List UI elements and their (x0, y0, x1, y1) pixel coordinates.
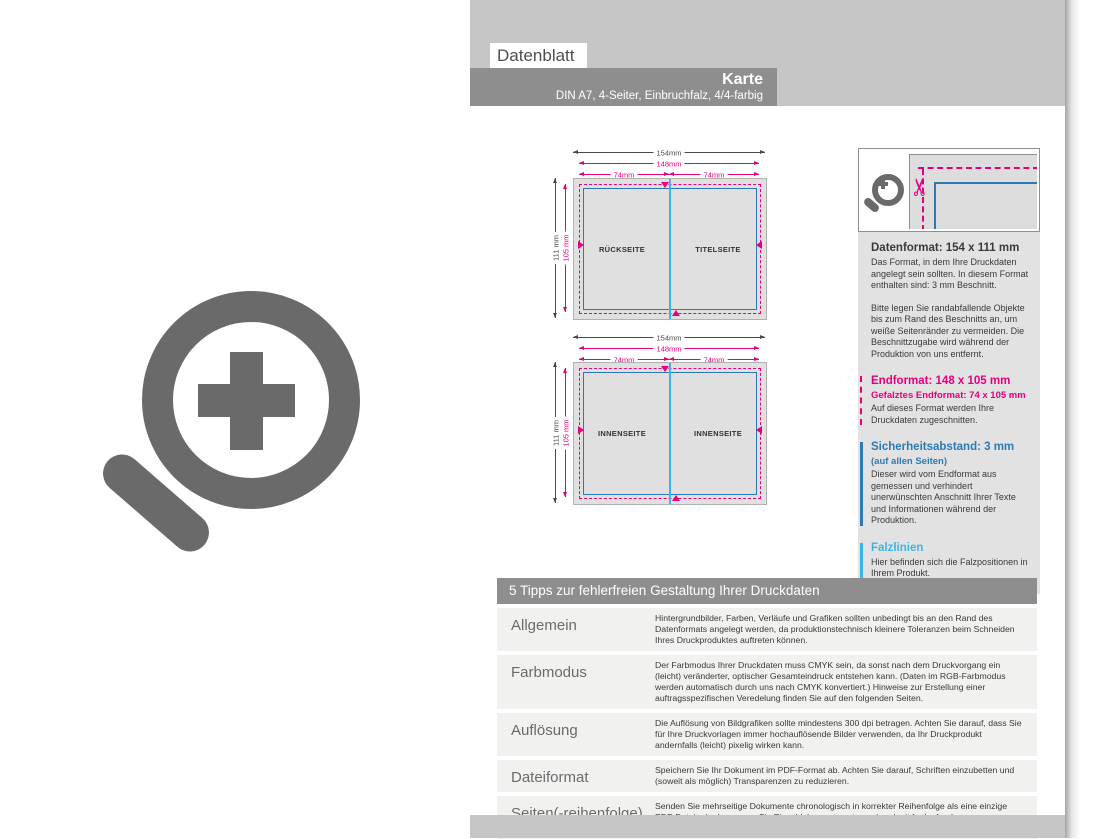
section-subheading: (auf allen Seiten) (871, 456, 1030, 467)
fold-diagram-outer: 154mm 148mm 74mm 74mm 111 mm 105 mm RÜCK… (555, 145, 770, 330)
section-heading: Falzlinien (871, 542, 1030, 555)
tip-text: Die Auflösung von Bildgrafiken sollte mi… (655, 713, 1037, 756)
tip-label: Farbmodus (497, 655, 655, 709)
dimension-trim-height: 105 mm (565, 368, 566, 497)
table-row: Allgemein Hintergrundbilder, Farben, Ver… (497, 608, 1037, 651)
table-row: Farbmodus Der Farbmodus Ihrer Druckdaten… (497, 655, 1037, 709)
format-info-text: Datenformat: 154 x 111 mm Das Format, in… (858, 232, 1040, 594)
table-row: Auflösung Die Auflösung von Bildgrafiken… (497, 713, 1037, 756)
tip-label: Auflösung (497, 713, 655, 756)
page-title: Karte (470, 71, 763, 89)
tip-text: Der Farbmodus Ihrer Druckdaten muss CMYK… (655, 655, 1037, 709)
tips-header: 5 Tipps zur fehlerfreien Gestaltung Ihre… (497, 578, 1037, 604)
datasheet-page: Datenblatt Karte DIN A7, 4-Seiter, Einbr… (470, 0, 1065, 838)
dimension-total-height: 111 mm (555, 362, 556, 503)
dimension-total-width: 154mm (573, 152, 765, 153)
panel-label-front: TITELSEITE (670, 179, 766, 319)
format-info-panel: ✂ Datenformat: 154 x 111 mm Das Format, … (858, 148, 1040, 594)
section-heading: Sicherheitsabstand: 3 mm (871, 441, 1030, 454)
section-endformat: Endformat: 148 x 105 mm Gefalztes Endfor… (871, 375, 1030, 426)
section-subheading: Gefalztes Endformat: 74 x 105 mm (871, 390, 1030, 401)
tip-text: Speichern Sie Ihr Dokument im PDF-Format… (655, 760, 1037, 792)
section-sicherheitsabstand: Sicherheitsabstand: 3 mm (auf allen Seit… (871, 441, 1030, 527)
card-sheet-outer: RÜCKSEITE TITELSEITE (573, 178, 767, 320)
section-text: Dieser wird vom Endformat aus gemessen u… (871, 469, 1030, 527)
title-bar: Karte DIN A7, 4-Seiter, Einbruchfalz, 4/… (470, 68, 777, 106)
corner-detail-box: ✂ (858, 148, 1040, 232)
dimension-half-width-left: 74mm (579, 174, 669, 175)
tips-section: 5 Tipps zur fehlerfreien Gestaltung Ihre… (497, 578, 1037, 839)
tip-label: Allgemein (497, 608, 655, 651)
tip-label: Dateiformat (497, 760, 655, 792)
dimension-trim-width: 148mm (579, 163, 759, 164)
blue-solid-marker (860, 442, 863, 526)
dimension-trim-width: 148mm (579, 348, 759, 349)
dimension-half-width-right: 74mm (669, 174, 759, 175)
plus-icon (230, 352, 263, 450)
plus-icon (881, 179, 885, 189)
dimension-half-width-right: 74mm (669, 359, 759, 360)
datenblatt-tab: Datenblatt (490, 43, 587, 68)
section-text: Bitte legen Sie randabfallende Objekte b… (871, 303, 1030, 361)
section-falzlinien: Falzlinien Hier befinden sich die Falzpo… (871, 542, 1030, 580)
dimension-trim-height: 105 mm (565, 184, 566, 312)
section-text: Das Format, in dem Ihre Druckdaten angel… (871, 257, 1030, 292)
zoom-plus-icon (872, 174, 904, 206)
bleed-cut-line (918, 167, 1037, 169)
magenta-dashed-marker (860, 376, 862, 425)
scissors-icon: ✂ (909, 177, 933, 197)
table-row: Dateiformat Speichern Sie Ihr Dokument i… (497, 760, 1037, 792)
card-sheet-inner: INNENSEITE INNENSEITE (573, 362, 767, 505)
tip-text: Hintergrundbilder, Farben, Verläufe und … (655, 608, 1037, 651)
dimension-total-width: 154mm (573, 337, 765, 338)
section-heading: Endformat: 148 x 105 mm (871, 375, 1030, 388)
page-subtitle: DIN A7, 4-Seiter, Einbruchfalz, 4/4-farb… (470, 89, 763, 103)
panel-label-back: RÜCKSEITE (574, 179, 670, 319)
dimension-total-height: 111 mm (555, 178, 556, 318)
fold-diagram-inner: 154mm 148mm 74mm 74mm 111 mm 105 mm INNE… (555, 330, 770, 515)
section-text: Auf dieses Format werden Ihre Druckdaten… (871, 403, 1030, 426)
cyan-solid-marker (860, 543, 863, 579)
dimension-half-width-left: 74mm (579, 359, 669, 360)
footer-band (470, 815, 1065, 838)
panel-label-inner-right: INNENSEITE (670, 363, 766, 504)
section-heading: Datenformat: 154 x 111 mm (871, 242, 1030, 255)
page-edge-shadow (1065, 0, 1080, 838)
panel-label-inner-left: INNENSEITE (574, 363, 670, 504)
safety-line (934, 182, 936, 229)
section-datenformat: Datenformat: 154 x 111 mm Das Format, in… (871, 242, 1030, 360)
corner-detail-diagram: ✂ (909, 154, 1037, 229)
section-text: Hier befinden sich die Falzpositionen in… (871, 557, 1030, 580)
safety-line (934, 182, 1037, 184)
